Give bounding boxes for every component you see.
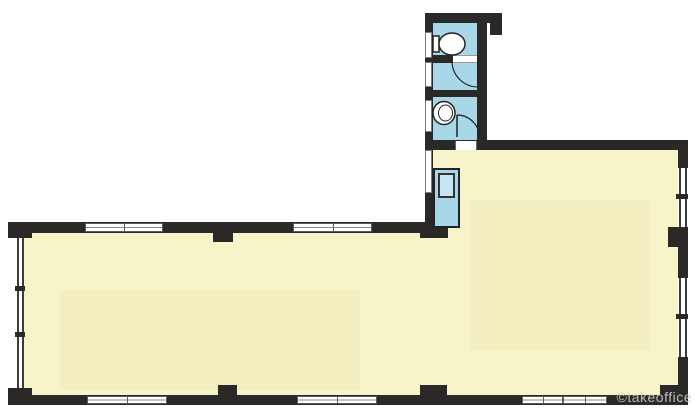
wall-right-upper bbox=[678, 140, 688, 168]
door-opening-wc-entry bbox=[455, 141, 477, 150]
wall-wc-divider-lower bbox=[433, 90, 477, 97]
door-swing-lower-icon bbox=[453, 110, 483, 140]
wall-right-middle bbox=[678, 247, 688, 278]
window-top-1 bbox=[85, 223, 163, 232]
wall-right-wing-top bbox=[477, 140, 688, 150]
window-mullion bbox=[15, 286, 25, 291]
window-mullion bbox=[676, 194, 688, 199]
floor-plan: ©takeoffice bbox=[0, 0, 695, 415]
pillar-bottom-wall-2 bbox=[420, 385, 447, 395]
window-bottom-1 bbox=[87, 396, 167, 404]
wall-top-left-corner bbox=[8, 222, 32, 238]
window-mullion bbox=[15, 332, 25, 337]
window-bottom-3 bbox=[522, 396, 563, 404]
watermark-text: ©takeoffice bbox=[600, 389, 692, 405]
kitchenette-sink-icon bbox=[438, 173, 455, 198]
window-connector bbox=[425, 150, 432, 193]
window-top-2 bbox=[293, 223, 372, 232]
pillar-top-wall bbox=[213, 233, 233, 242]
window-wc-2 bbox=[425, 62, 432, 87]
wall-wc-top-stub bbox=[490, 21, 502, 35]
wall-left-wing-top bbox=[8, 222, 448, 233]
pillar-bottom-wall-1 bbox=[218, 385, 237, 395]
main-room-floor-left-wing bbox=[24, 233, 433, 395]
main-room-floor-right-wing bbox=[433, 150, 678, 395]
window-left-facade bbox=[17, 238, 24, 388]
window-mullion bbox=[676, 314, 688, 319]
door-swing-upper-icon bbox=[450, 55, 482, 91]
pillar-right-wall bbox=[668, 227, 688, 247]
window-bottom-2 bbox=[297, 396, 377, 404]
